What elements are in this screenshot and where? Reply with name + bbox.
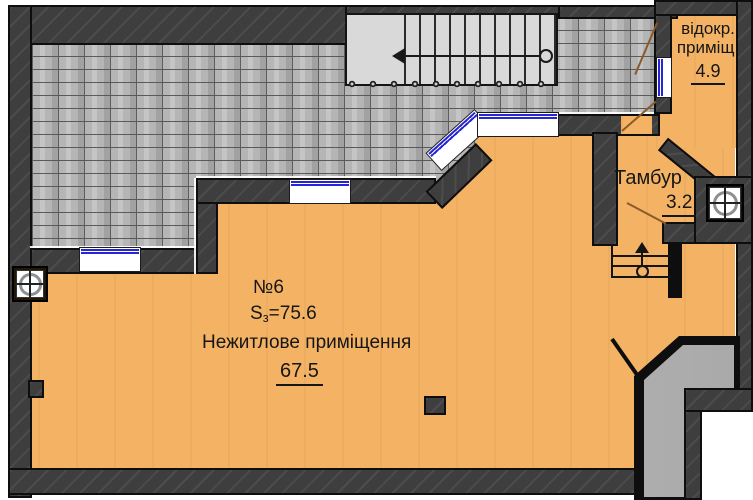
vidokr-area-value: 4.9 xyxy=(691,61,724,85)
window-left xyxy=(79,247,141,272)
wall-corridor-v xyxy=(684,410,702,500)
steps-arrow-icon xyxy=(635,242,649,253)
stair-direction-line xyxy=(404,55,547,57)
area-symbol-value: =75.6 xyxy=(269,303,317,324)
steps-start-circle xyxy=(636,265,649,278)
wall-bottom xyxy=(8,468,648,495)
stair-balusters xyxy=(347,80,555,89)
tambur-area-value: 3.2 xyxy=(662,192,696,217)
exterior-white-corner xyxy=(702,412,753,500)
stair-arrow-icon xyxy=(392,48,405,64)
floor-plan: відокр. приміщ. 4.9 Тамбур 3.2 №6 Sз=75.… xyxy=(0,0,753,500)
shaft-symbol-box xyxy=(709,187,741,219)
window-glazing xyxy=(658,59,665,96)
window-glazing xyxy=(291,181,349,188)
wall-left-pilaster xyxy=(28,380,44,398)
wall-pier xyxy=(424,396,446,415)
shaft-cross-icon xyxy=(708,202,742,204)
shaft-symbol-box xyxy=(16,270,44,298)
main-area-value: 67.5 xyxy=(276,360,323,386)
main-room-name: Нежитлове приміщення xyxy=(202,332,411,354)
wall-left xyxy=(8,5,32,498)
shaft-cross-icon xyxy=(15,283,45,285)
stair-start-circle xyxy=(539,49,553,63)
staircase xyxy=(345,13,558,86)
vidokr-room-label-line2: приміщ. xyxy=(670,38,746,58)
area-symbol: S xyxy=(250,303,263,324)
window-glazing xyxy=(479,114,557,121)
main-room-total-area: Sз=75.6 xyxy=(250,303,317,325)
shaft-symbol-left xyxy=(12,266,48,302)
tambur-room-area: 3.2 xyxy=(662,192,696,217)
entrance-steps xyxy=(611,244,671,278)
window-vidokr xyxy=(656,57,672,98)
shaft-symbol-right xyxy=(706,184,744,222)
wall-corridor-h xyxy=(684,388,753,412)
window-mid xyxy=(289,179,351,204)
window-corner-horizontal xyxy=(477,112,559,137)
vidokr-room-label-line1: відокр. xyxy=(672,19,744,39)
main-room-area: 67.5 xyxy=(276,360,323,386)
wall-top-left xyxy=(8,5,347,45)
stair-treads xyxy=(404,15,556,84)
vidokr-room-area: 4.9 xyxy=(672,61,744,85)
tambur-room-label: Тамбур xyxy=(614,167,682,190)
main-room-number: №6 xyxy=(253,277,284,299)
window-glazing xyxy=(81,249,139,256)
